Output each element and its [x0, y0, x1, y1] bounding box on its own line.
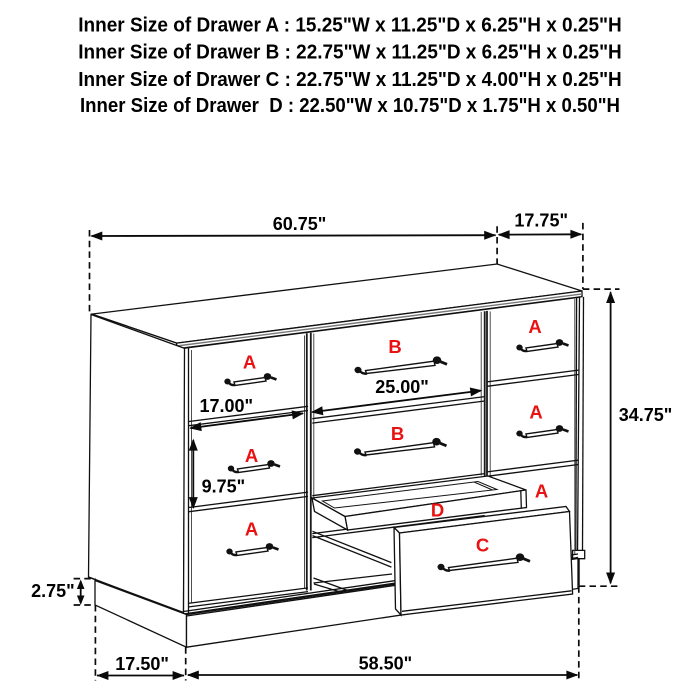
svg-text:2.75": 2.75" [31, 581, 75, 601]
svg-text:17.00": 17.00" [200, 396, 254, 416]
svg-text:A: A [245, 445, 258, 466]
svg-text:58.50": 58.50" [359, 653, 413, 673]
svg-text:25.00": 25.00" [375, 377, 429, 397]
svg-text:Inner Size of Drawer C : 22.75: Inner Size of Drawer C : 22.75"W x 11.25… [78, 68, 622, 91]
svg-text:C: C [476, 535, 489, 556]
svg-text:A: A [245, 519, 258, 540]
svg-text:17.50": 17.50" [115, 654, 169, 674]
svg-text:B: B [391, 423, 404, 444]
svg-text:Inner Size of Drawer D : 22.5: Inner Size of Drawer D : 22.50"W x 10.75… [80, 94, 620, 117]
svg-text:D: D [431, 500, 444, 521]
svg-text:17.75": 17.75" [514, 210, 568, 230]
svg-text:A: A [529, 402, 542, 423]
svg-text:A: A [528, 316, 541, 337]
svg-text:A: A [243, 352, 256, 373]
svg-text:Inner Size of Drawer B : 22.75: Inner Size of Drawer B : 22.75"W x 11.25… [78, 41, 622, 64]
svg-text:A: A [535, 481, 548, 502]
svg-text:Inner Size of Drawer A : 15.25: Inner Size of Drawer A : 15.25"W x 11.25… [78, 14, 622, 37]
svg-text:9.75": 9.75" [202, 477, 246, 497]
svg-text:B: B [388, 336, 401, 357]
svg-text:60.75": 60.75" [273, 214, 327, 234]
svg-text:34.75": 34.75" [619, 405, 673, 425]
